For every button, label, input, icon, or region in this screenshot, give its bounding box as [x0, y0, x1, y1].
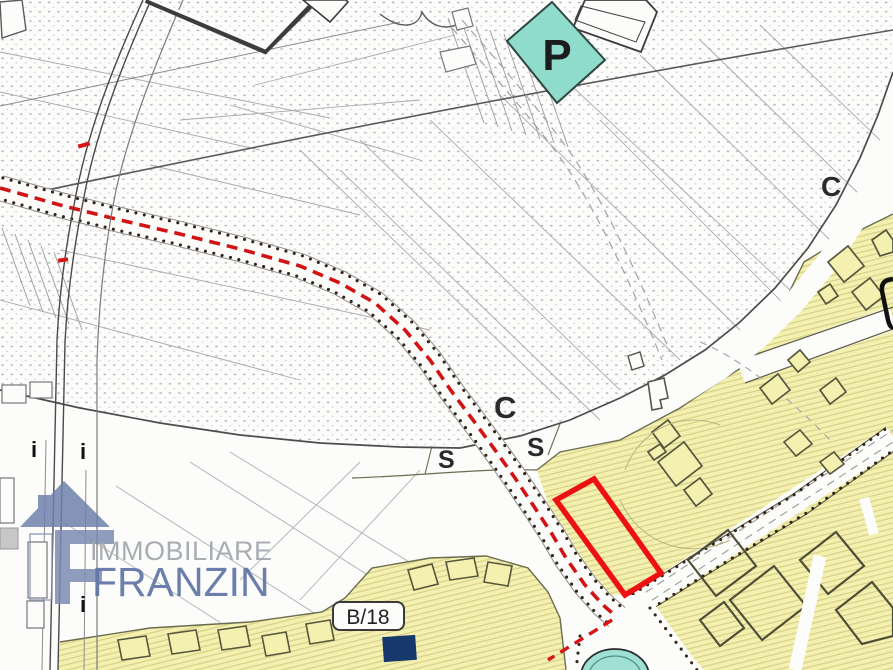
svg-text:S: S: [527, 432, 544, 462]
svg-text:i: i: [31, 437, 37, 462]
svg-text:C: C: [494, 390, 516, 425]
svg-text:i: i: [80, 592, 86, 617]
svg-text:C: C: [821, 171, 841, 202]
svg-text:FRANZIN: FRANZIN: [92, 559, 270, 605]
svg-text:B/18: B/18: [346, 606, 389, 629]
svg-text:S: S: [438, 446, 455, 474]
svg-text:i: i: [80, 439, 86, 464]
svg-text:P: P: [542, 31, 571, 80]
